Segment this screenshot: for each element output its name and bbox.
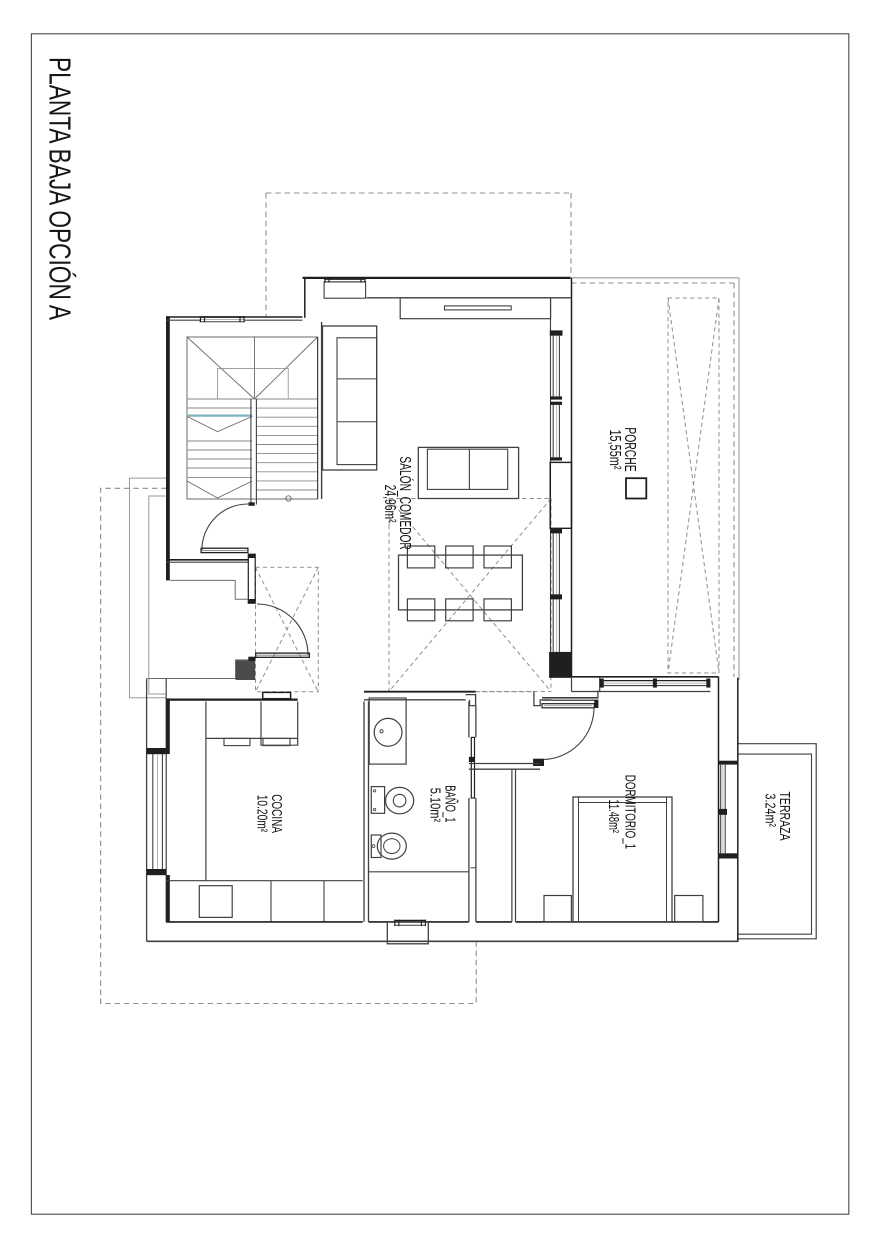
svg-text:10.20m²: 10.20m² [254, 795, 270, 833]
svg-text:11.48m²: 11.48m² [605, 800, 621, 834]
svg-text:5.10m²: 5.10m² [427, 788, 443, 823]
svg-text:DORMITORIO_1: DORMITORIO_1 [621, 775, 637, 849]
svg-text:15,55m²: 15,55m² [606, 430, 623, 470]
svg-text:3.24m²: 3.24m² [761, 794, 778, 828]
svg-text:PLANTA BAJA OPCIÓN A: PLANTA BAJA OPCIÓN A [43, 57, 78, 320]
svg-text:BAÑO_1: BAÑO_1 [441, 785, 458, 822]
svg-text:24,96m²: 24,96m² [381, 485, 398, 523]
